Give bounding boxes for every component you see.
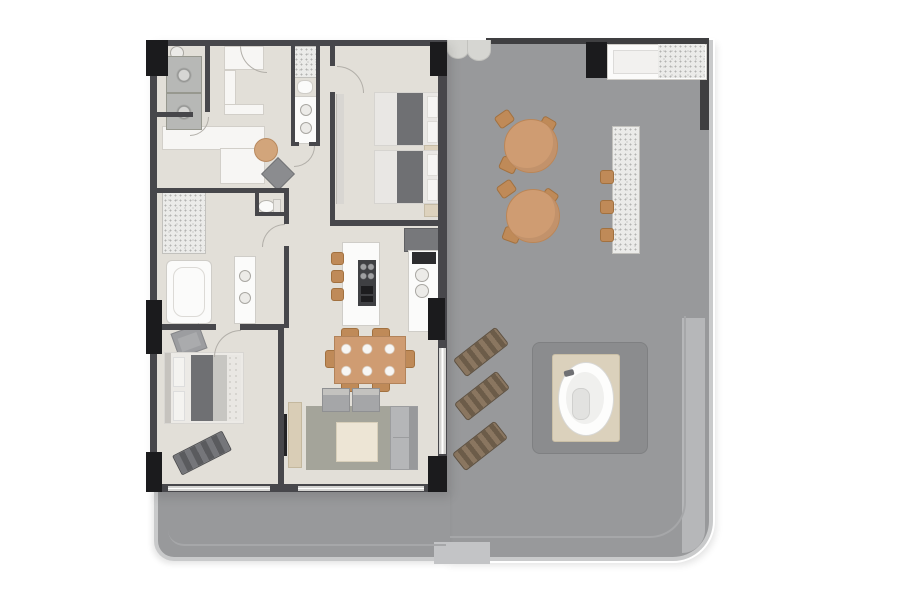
wall-bedroom2-west (330, 92, 335, 224)
bar-stool (331, 252, 344, 265)
window-south (298, 486, 424, 491)
cafe-table (506, 189, 560, 243)
sofa-back (409, 407, 417, 469)
bed-blanket (191, 355, 213, 421)
sink-basin (300, 122, 312, 134)
column (428, 456, 447, 492)
armchair-back (323, 389, 349, 395)
terrace-strip-inner-line (168, 492, 446, 546)
oven (412, 252, 436, 264)
wall-hall-west-lower (284, 246, 289, 328)
unit-wall-top (150, 40, 447, 46)
tv-console (288, 402, 302, 468)
bar-stool (331, 288, 344, 301)
bed-throw (213, 355, 227, 421)
dining-table (334, 336, 406, 384)
bathtub (166, 260, 212, 324)
column (430, 42, 447, 76)
planter-scallop (467, 40, 491, 61)
bed-headboard (165, 353, 171, 423)
washer (166, 56, 202, 93)
entry-closet (224, 104, 264, 115)
cooktop (358, 260, 376, 306)
bar-stool (600, 228, 614, 242)
wall-laundry-east (205, 46, 210, 112)
wall-bedroom2-south (330, 220, 447, 226)
double-sink-vanity (234, 256, 256, 324)
sink-basin (239, 292, 251, 304)
wall-bath2-west (291, 46, 295, 146)
wall-bath2-east (316, 46, 320, 146)
armchair (352, 388, 380, 412)
bed-pillow (173, 391, 185, 421)
wall-bedroom2-west (330, 46, 335, 66)
double-bed (374, 92, 440, 146)
king-bed (164, 352, 244, 424)
bed-duvet (227, 355, 241, 421)
planter-scallop (447, 40, 469, 59)
wall-masterbath-north (157, 188, 288, 193)
wardrobe (336, 94, 344, 204)
outdoor-kitchen-granite-top (658, 44, 705, 78)
bed-pillow (427, 121, 438, 143)
sink-basin (300, 104, 312, 116)
wall-wc-south (255, 212, 285, 216)
bed-pillow (427, 179, 438, 201)
sofa-cushion-line (393, 437, 409, 438)
cafe-table (504, 119, 558, 173)
bed-pillow (173, 357, 185, 387)
window-east-sliding-door (439, 348, 446, 454)
wall-laundry-south (157, 112, 193, 117)
floor-plan-canvas (0, 0, 900, 600)
nightstand (424, 204, 439, 217)
tv (284, 414, 287, 456)
sofa (390, 406, 418, 470)
terrace-bar-counter (612, 126, 640, 254)
bed-blanket (397, 93, 423, 145)
shower (162, 192, 206, 254)
wall-hall-west-upper (284, 188, 289, 224)
column (146, 300, 162, 354)
bar-stool (600, 170, 614, 184)
kitchen-sink (415, 284, 429, 298)
column (146, 40, 168, 76)
armchair (322, 388, 350, 412)
bathtub-basin (173, 267, 205, 317)
double-bed (374, 150, 440, 204)
armchair-seat (178, 332, 202, 352)
refrigerator (404, 228, 440, 252)
oven-drawer (361, 286, 373, 294)
column (428, 298, 445, 340)
armchair-back (353, 389, 379, 395)
console-table (254, 138, 278, 162)
window-south (168, 486, 270, 491)
coffee-table (336, 422, 378, 462)
kitchen-sink (415, 268, 429, 282)
outdoor-kitchen-sink (613, 50, 659, 74)
wall-masterbed-north (157, 324, 216, 330)
wall-living-west (278, 324, 284, 486)
bed-blanket (397, 151, 423, 203)
bar-stool (600, 200, 614, 214)
bed-pillow (427, 154, 438, 176)
toilet (297, 80, 313, 94)
bar-stool (331, 270, 344, 283)
oven-drawer (361, 296, 373, 302)
terrace-column (586, 42, 607, 78)
sink-basin (239, 270, 251, 282)
unit-wall-left (150, 40, 157, 492)
hot-tub-seat (572, 388, 590, 420)
bed-pillow (427, 96, 438, 118)
column (146, 452, 162, 492)
